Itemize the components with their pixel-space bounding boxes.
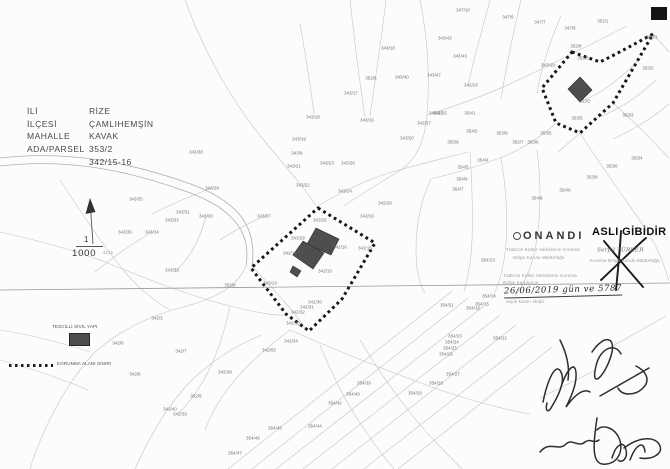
approval-note-line3: sayılı kararı ekidir. (506, 299, 545, 304)
parcel-number-label: 353/6 (606, 164, 617, 169)
parcel-number-label: 354/40 (346, 392, 360, 397)
asli-stamp-org: Koruma Bölge Kurulu Müdürlüğü (590, 258, 660, 263)
parcel-number-label: 354/26 (439, 352, 453, 357)
parcel-number-label: 342/55 (262, 348, 276, 353)
parcel-number-label: 353/2 (579, 99, 590, 104)
parcel-number-label: 354/22 (493, 336, 507, 341)
parcel-number-label: 354/8 (456, 177, 467, 182)
parcel-number-label: 354/2 (466, 129, 477, 134)
approval-note-line2: Bölge Kurulunun (503, 280, 539, 285)
parcel-number-label: 354/14 (482, 294, 496, 299)
parcel-number-label: 343/35 (129, 197, 143, 202)
parcel-number-label: 342/32 (291, 310, 305, 315)
parcel-number-label: 342/28 (378, 201, 392, 206)
parcel-number-label: 342/33 (286, 321, 300, 326)
parcel-number-label: 343/31 (176, 210, 190, 215)
approval-note-line1: Trabzon Kültür Varlıklarını Koruma (503, 273, 577, 278)
parcel-number-label: 354/25 (443, 346, 457, 351)
parcel-number-label: 343/23 (320, 161, 334, 166)
parcel-number-label: 352/9 (190, 394, 201, 399)
legend-boundary-label: KORUNMA ALANI SINIRI (57, 361, 111, 366)
parcel-number-label: 342/38 (218, 370, 232, 375)
parcel-number-label: 354/27 (446, 372, 460, 377)
parcel-number-label: 354/45 (268, 426, 282, 431)
parcel-number-label: 343/8 (291, 151, 302, 156)
legend-building-label: TESCİLLİ SİVİL YAPI (52, 324, 98, 329)
parcel-number-label: 343/28 (205, 186, 219, 191)
parcel-number-label: 354/21 (440, 303, 454, 308)
parcel-number-label: 342/8 (129, 372, 140, 377)
location-info-labels: İLİ İLÇESİ MAHALLE ADA/PARSEL (27, 105, 85, 156)
parcel-number-label: 342/14 (283, 251, 297, 256)
parcel-number-label: 342/10 (318, 269, 332, 274)
parcel-number-label: 354/24 (445, 340, 459, 345)
parcel-number-label: 352/8 (570, 44, 581, 49)
parcel-number-label: 354/5 (457, 165, 468, 170)
parcel-number-label: 353/1 (646, 35, 657, 40)
asli-stamp-officer-name: Serpil TÜRKER (597, 247, 644, 254)
parcel-number-label: 353/8 (586, 175, 597, 180)
block-parcel-value-1: 353/2 (89, 143, 154, 156)
asli-stamp-title: ASLI GİBİDİR (592, 226, 666, 238)
province-label: İLİ (27, 105, 85, 118)
parcel-number-label: 343/43 (453, 54, 467, 59)
parcel-number-label: 352/1 (597, 19, 608, 24)
parcel-number-label: 343/19 (541, 63, 555, 68)
parcel-number-label: 353/3 (622, 113, 633, 118)
parcel-number-label: 343/30 (199, 214, 213, 219)
parcel-number-label: 343/13 (263, 281, 277, 286)
scale-divider (76, 246, 103, 247)
parcel-number-label: 354/1 (464, 111, 475, 116)
parcel-number-label: 347/10 (456, 8, 470, 13)
cadastral-map-scan: 347/10347/9347/7347/8352/1353/1352/8343/… (0, 0, 670, 469)
parcel-number-label: 354/42 (328, 401, 342, 406)
parcel-number-label: 352/6 (365, 76, 376, 81)
parcel-number-label: 343/32 (165, 218, 179, 223)
parcel-number-label: 354/47 (228, 451, 242, 456)
parcel-number-label: 343/38 (189, 150, 203, 155)
parcel-number-label: 354/23 (448, 334, 462, 339)
parcel-number-label: 354/44 (308, 424, 322, 429)
parcel-number-label: 343/20 (400, 136, 414, 141)
parcel-number-label: 342/34 (284, 339, 298, 344)
parcel-number-label: 354/6 (559, 188, 570, 193)
parcel-number-label: 343/25 (313, 218, 327, 223)
seal-icon (513, 232, 521, 240)
parcel-number-label: 342/47 (429, 111, 443, 116)
parcel-number-label: 353/8 (577, 56, 588, 61)
parcel-number-label: 343/34 (145, 230, 159, 235)
parcel-number-label: 353/9 (496, 131, 507, 136)
protection-boundary-legend-line-icon (9, 364, 53, 367)
parcel-number-label: 347/8 (564, 26, 575, 31)
block-parcel-value-2: 342/15-16 (89, 156, 154, 169)
parcel-number-label: 347/9 (502, 15, 513, 20)
onandi-stamp-text: ONANDI (523, 230, 584, 242)
parcel-number-label: 352/9 (224, 283, 235, 288)
neighborhood-value: KAVAK (89, 130, 154, 143)
parcel-number-label: 342/15 (358, 246, 372, 251)
block-parcel-label: ADA/PARSEL (27, 143, 85, 156)
parcel-number-label: 343/19 (360, 118, 374, 123)
parcel-number-label: 343/22 (296, 183, 310, 188)
parcel-number-label: 343/47 (427, 73, 441, 78)
parcel-number-label: 353/4 (631, 156, 642, 161)
onandi-stamp-line2: Bölge Kurulu Müdürlüğü (513, 255, 565, 260)
scale-numerator: 1 (84, 235, 88, 244)
parcel-number-label: 342/7 (175, 349, 186, 354)
district-value: ÇAMLIHEMŞİN (89, 118, 154, 131)
parcel-number-label: 353/5 (540, 131, 551, 136)
parcel-number-label: 343/29 (291, 236, 305, 241)
scale-denominator: 1000 (72, 248, 96, 259)
parcel-number-label: 355/9 (447, 140, 458, 145)
parcel-number-label: 343/40 (395, 75, 409, 80)
parcel-number-label: 354/28 (429, 381, 443, 386)
parcel-number-label: 342/16 (333, 245, 347, 250)
onandi-stamp-line1: Trabzon Kültür Varlıklarını Koruma (506, 247, 580, 252)
parcel-number-label: 353/5 (571, 116, 582, 121)
scale-subnote: 4211 (103, 250, 113, 255)
parcel-number-label: 354/29 (408, 391, 422, 396)
parcel-number-label: 343/26 (341, 161, 355, 166)
parcel-number-label: 353/2 (642, 66, 653, 71)
parcel-number-label: 354/13 (481, 258, 495, 263)
parcel-number-label: 342/3 (151, 316, 162, 321)
parcel-number-label: 342/39 (173, 412, 187, 417)
parcel-number-label: 354/18 (466, 306, 480, 311)
parcel-number-label: 343/24 (338, 189, 352, 194)
parcel-number-label: 354/7 (452, 187, 463, 192)
neighborhood-label: MAHALLE (27, 130, 85, 143)
parcel-number-label: 343/21 (287, 164, 301, 169)
parcel-number-label: 354/4 (477, 158, 488, 163)
parcel-number-label: 343/19 (292, 137, 306, 142)
parcel-number-label: 343/36 (118, 230, 132, 235)
parcel-number-label: 353/6 (527, 140, 538, 145)
registered-building-swatch-icon (69, 333, 90, 346)
parcel-number-label: 342/19 (360, 214, 374, 219)
onandi-stamp-title: ONANDI (513, 230, 584, 242)
parcel-number-label: 352/7 (512, 140, 523, 145)
district-label: İLÇESİ (27, 118, 85, 131)
parcel-number-label: 354/9 (531, 196, 542, 201)
parcel-number-label: 347/7 (534, 20, 545, 25)
parcel-number-label: 343/33 (165, 268, 179, 273)
location-info-values: RİZE ÇAMLIHEMŞİN KAVAK 353/2 342/15-16 (89, 105, 154, 169)
province-value: RİZE (89, 105, 154, 118)
parcel-number-label: 354/46 (246, 436, 260, 441)
parcel-number-label: 342/6 (112, 341, 123, 346)
parcel-number-label: 343/18 (381, 46, 395, 51)
parcel-number-label: 343/42 (438, 36, 452, 41)
parcel-number-label: 343/17 (344, 91, 358, 96)
parcel-number-label: 354/39 (357, 381, 371, 386)
parcel-number-label: 343/27 (257, 214, 271, 219)
parcel-number-label: 342/29 (464, 83, 478, 88)
parcel-number-label: 343/18 (306, 115, 320, 120)
parcel-number-label: 342/27 (417, 121, 431, 126)
